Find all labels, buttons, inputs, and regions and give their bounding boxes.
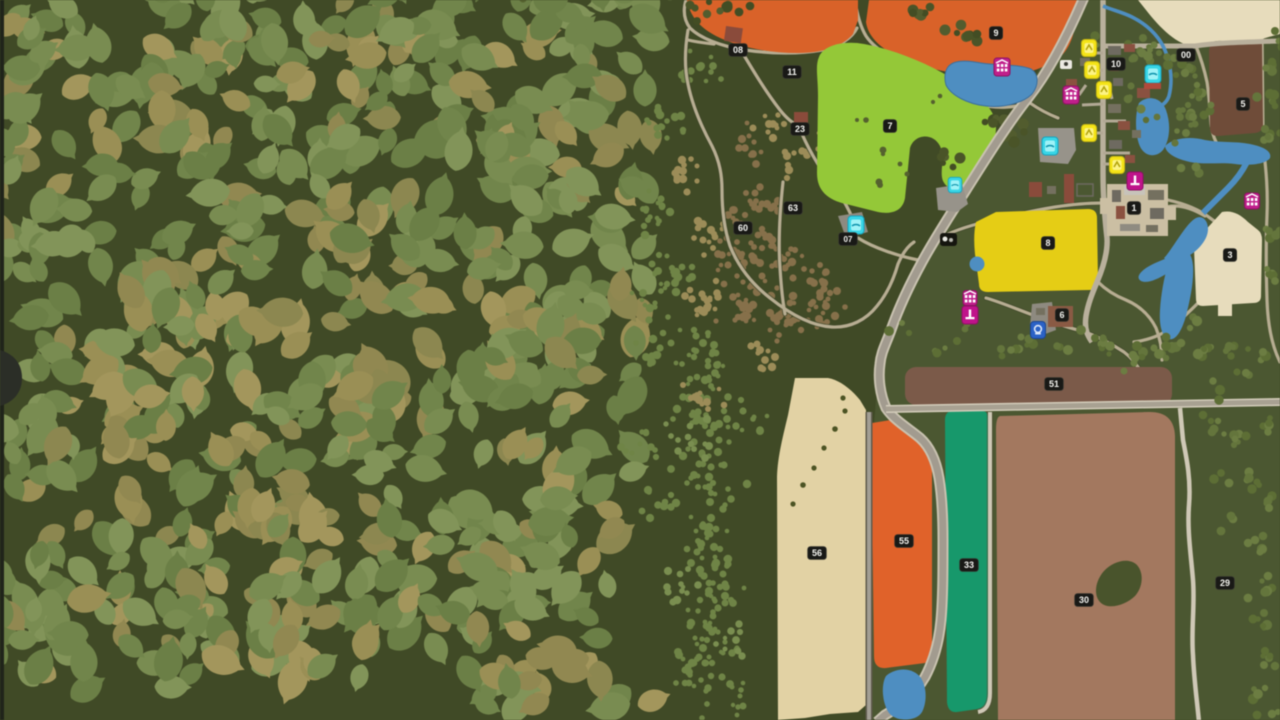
svg-text:30: 30 <box>1079 595 1089 605</box>
svg-text:63: 63 <box>788 203 798 213</box>
svg-text:29: 29 <box>1220 578 1230 588</box>
svg-text:5: 5 <box>1240 99 1245 109</box>
svg-text:10: 10 <box>1111 59 1121 69</box>
svg-text:1: 1 <box>1131 203 1136 213</box>
svg-text:6: 6 <box>1059 310 1064 320</box>
svg-text:7: 7 <box>887 121 892 131</box>
svg-text:00: 00 <box>1181 50 1191 60</box>
svg-text:9: 9 <box>993 28 998 38</box>
svg-text:23: 23 <box>795 124 805 134</box>
svg-text:51: 51 <box>1049 379 1059 389</box>
svg-text:60: 60 <box>738 223 748 233</box>
svg-text:55: 55 <box>899 536 909 546</box>
svg-text:33: 33 <box>964 560 974 570</box>
svg-text:07: 07 <box>844 235 853 244</box>
svg-text:3: 3 <box>1227 250 1232 260</box>
svg-text:08: 08 <box>733 45 743 55</box>
svg-text:8: 8 <box>1045 238 1050 248</box>
svg-text:56: 56 <box>812 548 822 558</box>
svg-text:11: 11 <box>787 67 797 77</box>
